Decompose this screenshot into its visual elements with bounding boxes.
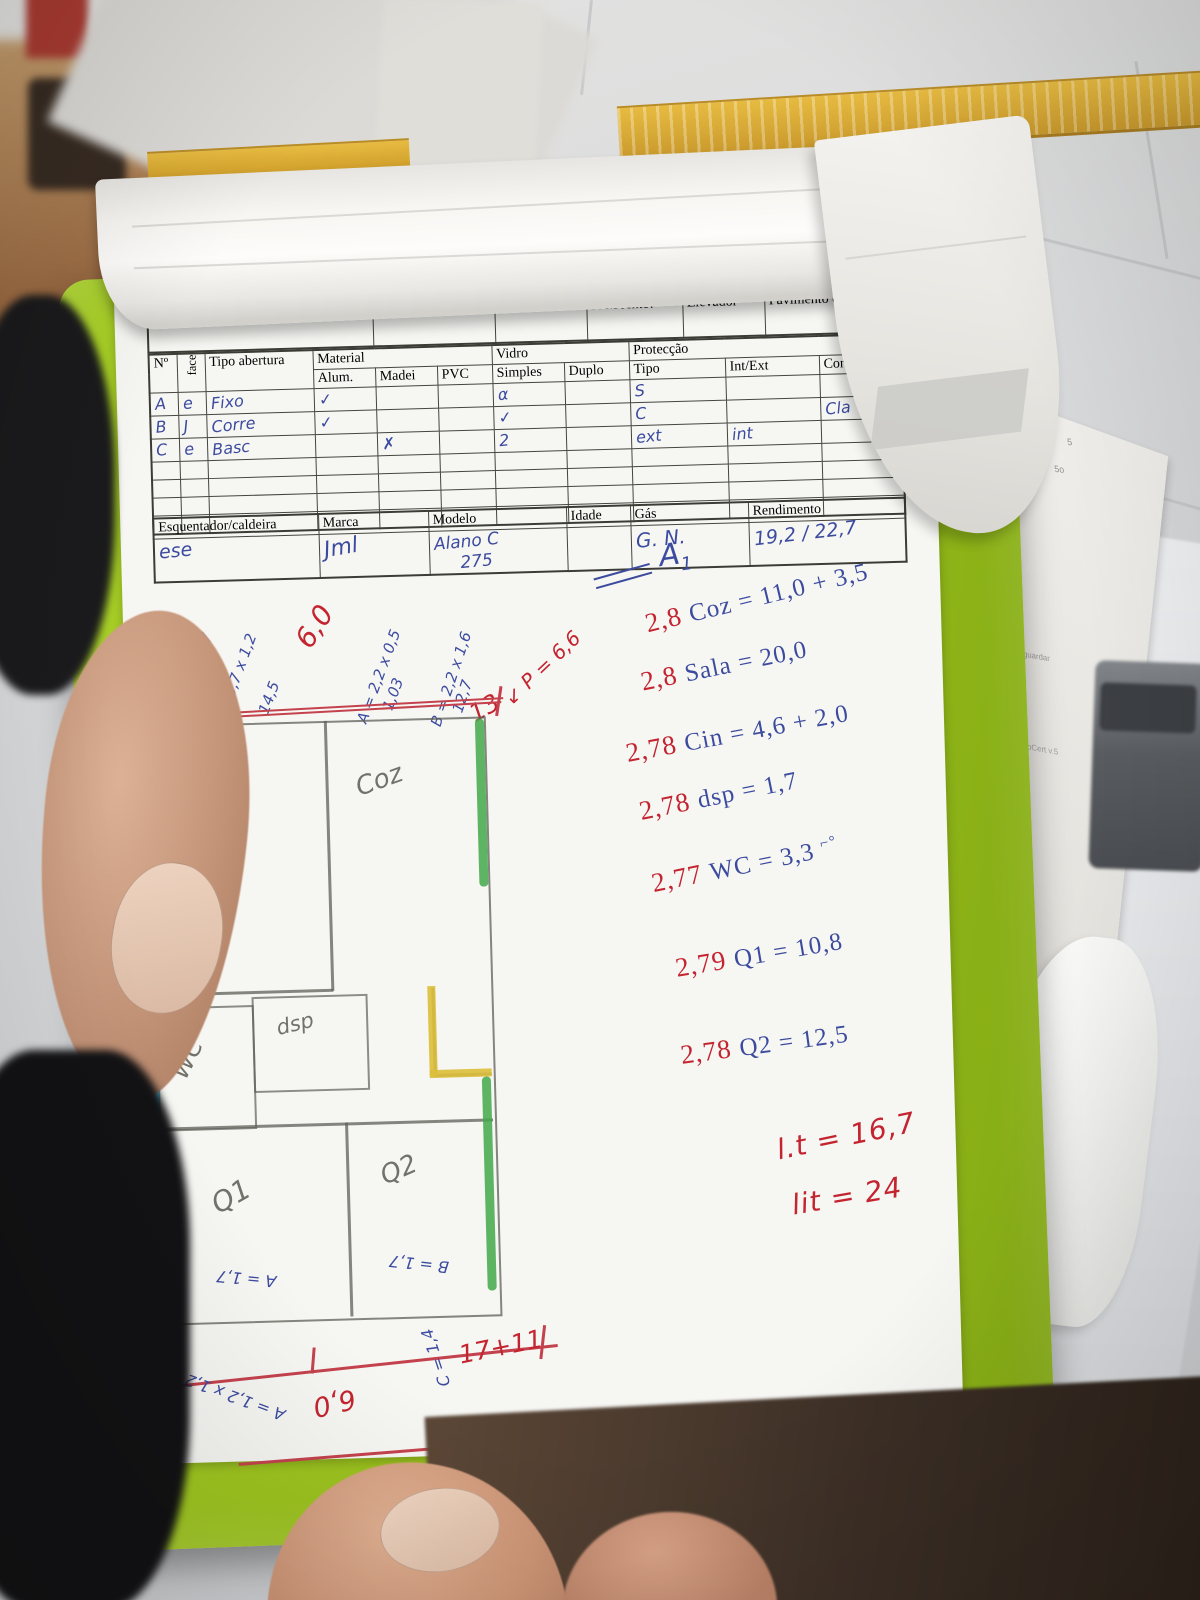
rolled-page-crease [134, 237, 932, 270]
calc-sala: 2,8Sala = 20,0 [638, 633, 810, 697]
calc-q1: 2,79Q1 = 10,8 [673, 925, 845, 984]
red-perimeter: ↙ P = 6,6 [499, 626, 585, 710]
wc-stray-marks: ⌐° [818, 833, 837, 852]
device-screen [1099, 682, 1197, 733]
showthrough-gray-shape [870, 368, 1029, 450]
measure-b-22x16: B = 2,2 x 1,6 [427, 629, 475, 728]
col-pvc: PVC [437, 365, 493, 386]
rolled-page-crease [132, 182, 929, 227]
col-simples: Simples [492, 363, 565, 384]
photo-kitchen-clipboard: 5 5o ambos guardar MobileDecPropCert v.5… [0, 0, 1200, 1600]
measure-a-22x05: A = 2,2 x 0,5 [353, 627, 404, 726]
label-a1: A1 [657, 535, 694, 578]
red-sum-17-11: 17+11 [456, 1324, 545, 1369]
calc-wc: 2,77WC = 3,3 ⌐° [649, 831, 840, 899]
rolled-page-crease [846, 236, 1026, 260]
calc-total-2: lit = 24 [789, 1170, 904, 1221]
gray-device-blur [1088, 660, 1200, 872]
col-duplo: Duplo [564, 361, 630, 382]
col-idade: Idade [566, 505, 631, 527]
col-numero: Nº [149, 354, 178, 393]
red-width-6-0: 6,0 [288, 599, 340, 654]
sheet-edge-mark: 5 [1067, 437, 1073, 448]
col-tipo-abertura: Tipo abertura [204, 350, 313, 392]
sheet-edge-mark: 5o [1054, 463, 1065, 475]
calc-dsp: 2,78dsp = 1,7 [637, 764, 801, 827]
red-width-bottom-6-0: 6,0 [310, 1382, 359, 1422]
calc-q2: 2,78Q2 = 12,5 [679, 1018, 851, 1071]
dark-sleeve [0, 295, 115, 695]
calc-total-1: l.t = 16,7 [774, 1106, 919, 1167]
calc-cin: 2,78Cin = 4,6 + 2,0 [623, 697, 851, 769]
col-face: face [177, 353, 206, 392]
dark-shadow-bottom-left [0, 1050, 190, 1600]
col-madei: Madei [375, 366, 438, 387]
wall-highlight-yellow-h [430, 1068, 492, 1078]
col-alum: Alum. [313, 368, 376, 389]
